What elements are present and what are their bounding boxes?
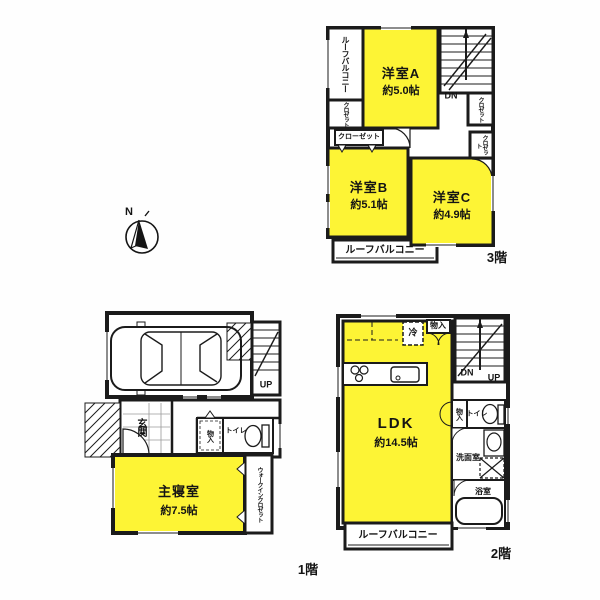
toilet-tank — [498, 405, 504, 424]
floor3-closet-right2-label: クロゼット — [475, 133, 487, 157]
kitchen-counter — [343, 363, 427, 385]
floor3-room-c-size: 約4.9帖 — [433, 210, 470, 222]
floor2-label: 2階 — [491, 547, 511, 561]
bathtub — [456, 498, 502, 524]
floor2-toilet-label: トイレ — [467, 410, 488, 417]
plan-floor2-drawing — [336, 312, 516, 564]
floor1-storage-label: 物入 — [207, 422, 214, 450]
floor1-wic-label: ウォークインクロゼット — [256, 458, 262, 530]
toilet-tank — [262, 425, 269, 447]
plan-floor1-drawing — [83, 310, 328, 588]
floor3-room-a-size: 約5.0帖 — [382, 86, 419, 98]
garage-slope-hatch — [227, 323, 252, 360]
floor3-room-b-name: 洋室B — [350, 181, 388, 195]
floor3-stairs-dn-label: DN — [445, 91, 458, 100]
floor2-roof-balcony-label: ルーフバルコニー — [358, 531, 437, 542]
floor3-roof-balcony-bottom-label: ルーフバルコニー — [345, 246, 424, 257]
floor1-bedroom-size: 約7.5帖 — [160, 506, 197, 518]
floor2-storage-hall-label: 物入 — [456, 401, 463, 427]
floor2-stairs-dn-label: DN — [461, 368, 474, 377]
compass: N — [112, 203, 172, 263]
floor2-bathroom-label: 浴室 — [475, 488, 491, 496]
floor3-stairs — [440, 28, 493, 93]
floor1-bedroom-name: 主寝室 — [158, 485, 200, 499]
plan-floor3: ルーフバルコニー クロゼット クローゼット 洋室A 約5.0帖 DN クロゼット… — [326, 26, 512, 276]
floor2-washroom-label: 洗面室 — [456, 454, 480, 462]
floor1-toilet-room — [223, 418, 273, 453]
floor3-room-a-name: 洋室A — [382, 67, 420, 81]
floor3-room-c-name: 洋室C — [433, 191, 471, 205]
kitchen-sink — [391, 367, 419, 382]
floor3-closet-shelf-label: クローゼット — [338, 133, 380, 140]
floor1-toilet-label: トイレ — [226, 427, 247, 434]
compass-north-label: N — [125, 207, 133, 219]
floor1-label: 1階 — [298, 563, 318, 577]
floor3-room-b-size: 約5.1帖 — [350, 200, 387, 212]
porch-steps-hatch — [85, 403, 120, 457]
floor2-storage-top-label: 物入 — [430, 322, 446, 330]
floor3-closet-left-label: クロゼット — [342, 101, 348, 127]
toilet-bowl — [245, 426, 261, 447]
floor3-label: 3階 — [487, 251, 507, 265]
fridge-label: 冷 — [408, 328, 417, 337]
floor2-ldk-size: 約14.5帖 — [374, 438, 417, 450]
compass-icon — [112, 203, 172, 263]
floor3-closet-right1-label: クロゼット — [477, 95, 483, 123]
floor-plan-sheet: N — [0, 0, 600, 600]
floor3-roof-balcony-top-label: ルーフバルコニー — [341, 31, 349, 97]
floor1-entrance-label: 玄関 — [135, 404, 145, 450]
floor2-ldk-name: LDK — [378, 416, 415, 432]
floor1-stairs-up-label: UP — [260, 380, 273, 389]
plan-floor1: UP 玄関 物入 トイレ 主寝室 約7.5帖 ウォークインクロゼット 1階 — [83, 310, 328, 588]
floor2-stairs-up-label: UP — [488, 373, 501, 382]
plan-floor2: 冷 物入 DN UP 物入 トイレ 洗面室 浴室 LDK 約14.5帖 ルーフバ… — [336, 312, 516, 564]
